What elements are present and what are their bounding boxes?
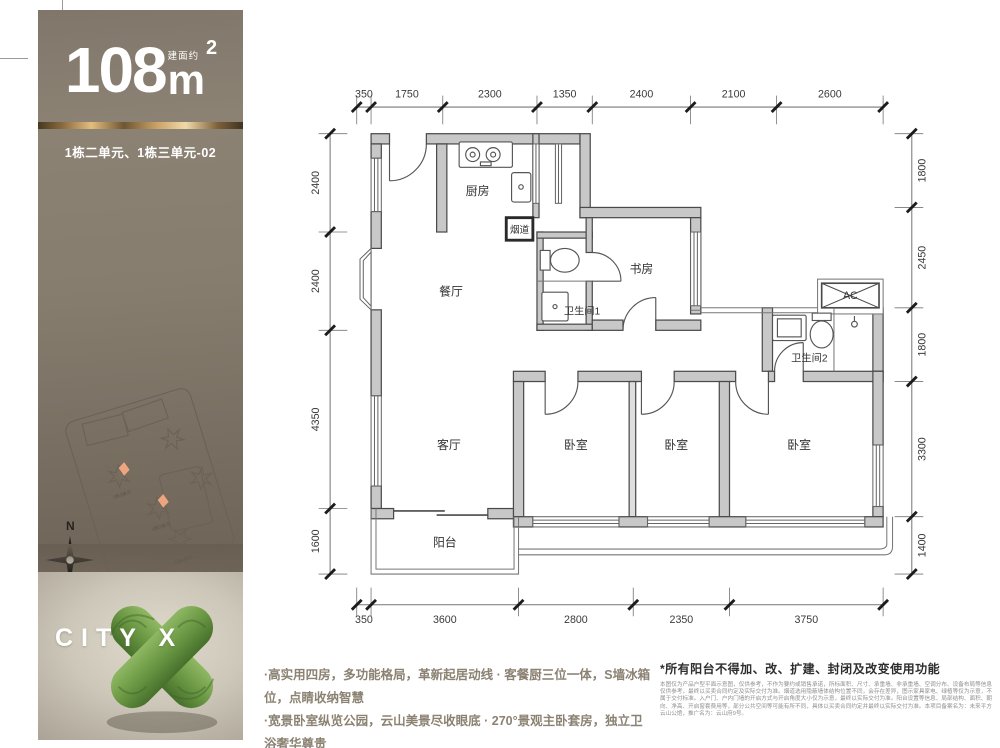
gold-divider — [38, 122, 243, 129]
site-slab — [82, 414, 128, 446]
area-unit: m — [168, 64, 205, 97]
svg-text:2100: 2100 — [722, 89, 746, 101]
building-label: 1栋2单元 — [151, 520, 172, 532]
dim-bottom: 3503600280023503750 — [352, 588, 888, 627]
svg-text:3300: 3300 — [916, 437, 928, 461]
x-sculpture-icon — [83, 578, 241, 740]
area-number: 108 — [65, 44, 166, 96]
svg-text:2600: 2600 — [818, 89, 842, 101]
svg-text:2400: 2400 — [630, 89, 654, 101]
dim-top: 350175023001350240021002600 — [352, 89, 888, 125]
room-label: 卫生间2 — [791, 351, 828, 364]
floor-plan: 厨房烟道餐厅卫生间1书房AC卫生间2客厅卧室卧室卧室阳台 35017502300… — [283, 68, 963, 650]
disclaimer-body: 本图仅为产品户型平面示意图，仅供参考，不作为要约或销售承诺，所标面积、尺寸、承重… — [660, 682, 992, 718]
svg-text:1400: 1400 — [916, 533, 928, 557]
svg-text:2300: 2300 — [478, 89, 502, 101]
svg-text:N: N — [66, 519, 75, 533]
svg-text:2400: 2400 — [310, 269, 322, 293]
room-label: 卫生间1 — [564, 305, 601, 318]
disclaimer: *所有阳台不得加、改、扩建、封闭及改变使用功能 本图仅为产品户型平面示意图，仅供… — [660, 660, 992, 718]
room-label: 厨房 — [466, 184, 490, 198]
svg-text:3600: 3600 — [433, 614, 457, 626]
highlighted-unit — [157, 493, 170, 508]
city-x-logo: CITY X — [55, 624, 183, 653]
area-figure: 108 建面约 m 2 — [38, 44, 243, 96]
room-label: 卧室 — [787, 438, 811, 452]
svg-text:1800: 1800 — [916, 159, 928, 183]
dimension-lines: 3501750230013502400210026003503600280023… — [310, 89, 928, 627]
svg-text:350: 350 — [355, 614, 373, 626]
site-building — [159, 425, 186, 453]
svg-text:1750: 1750 — [395, 89, 419, 101]
svg-text:3750: 3750 — [794, 614, 818, 626]
room-label: AC — [843, 290, 858, 302]
svg-text:1350: 1350 — [553, 89, 577, 101]
unit-label: 1栋二单元、1栋三单元-02 — [38, 142, 243, 161]
svg-text:2400: 2400 — [310, 171, 322, 195]
svg-text:2450: 2450 — [916, 246, 928, 270]
area-superscript: 2 — [206, 37, 217, 60]
room-label: 客厅 — [437, 438, 461, 452]
fixtures — [459, 142, 857, 348]
svg-text:2800: 2800 — [564, 614, 588, 626]
svg-text:4350: 4350 — [310, 408, 322, 432]
room-labels: 厨房烟道餐厅卫生间1书房AC卫生间2客厅卧室卧室卧室阳台 — [433, 184, 858, 549]
dim-right: 18002450180033001400 — [895, 129, 929, 579]
svg-text:1800: 1800 — [916, 333, 928, 357]
selling-line-1: ·高实用四房，多功能格局，革新起居动线 · 客餐厨三位一体，S墙冰箱位，点睛收纳… — [264, 664, 654, 710]
crop-mark-horizontal — [0, 58, 28, 59]
svg-text:350: 350 — [355, 89, 373, 101]
selling-points: ·高实用四房，多功能格局，革新起居动线 · 客餐厨三位一体，S墙冰箱位，点睛收纳… — [264, 664, 654, 748]
svg-text:2350: 2350 — [670, 614, 694, 626]
building-label: 1栋3单元 — [112, 488, 133, 500]
svg-text:1600: 1600 — [310, 529, 322, 553]
dim-left: 2400240043501600 — [310, 129, 347, 579]
room-label: 卧室 — [664, 438, 688, 452]
room-label: 书房 — [630, 262, 654, 276]
disclaimer-title: *所有阳台不得加、改、扩建、封闭及改变使用功能 — [660, 660, 992, 677]
sidebar: 108 建面约 m 2 1栋二单元、1栋三单元-02 — [38, 10, 243, 740]
room-label: 阳台 — [433, 536, 457, 550]
highlighted-unit — [117, 461, 130, 476]
poster-page: 108 建面约 m 2 1栋二单元、1栋三单元-02 — [0, 0, 1000, 748]
selling-line-2: ·宽景卧室纵览公园，云山美景尽收眼底 · 270°景观主卧套房，独立卫浴奢华尊贵 — [264, 710, 654, 748]
logo-photo: CITY X — [38, 572, 243, 740]
room-label: 餐厅 — [439, 285, 463, 299]
room-label: 卧室 — [564, 438, 588, 452]
room-label: 烟道 — [510, 224, 530, 236]
